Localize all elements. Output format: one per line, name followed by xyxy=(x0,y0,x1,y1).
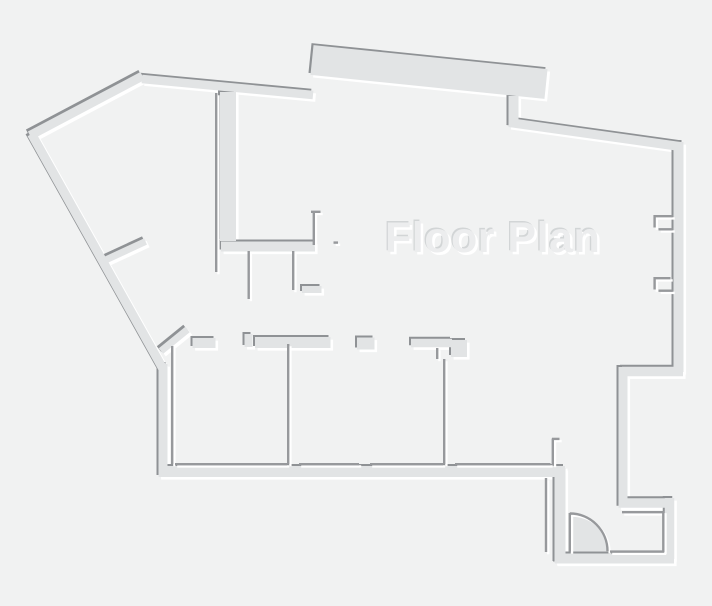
interior-lines-highlight xyxy=(174,95,674,554)
interior-lines xyxy=(172,93,672,552)
floor-plan-canvas: Floor Plan Floor Plan Floor Plan xyxy=(0,0,712,606)
floor-plan-page: Floor Plan Floor Plan Floor Plan xyxy=(0,0,712,606)
outer-walls-fill xyxy=(30,60,683,563)
floor-plan-title: Floor Plan xyxy=(385,214,600,262)
